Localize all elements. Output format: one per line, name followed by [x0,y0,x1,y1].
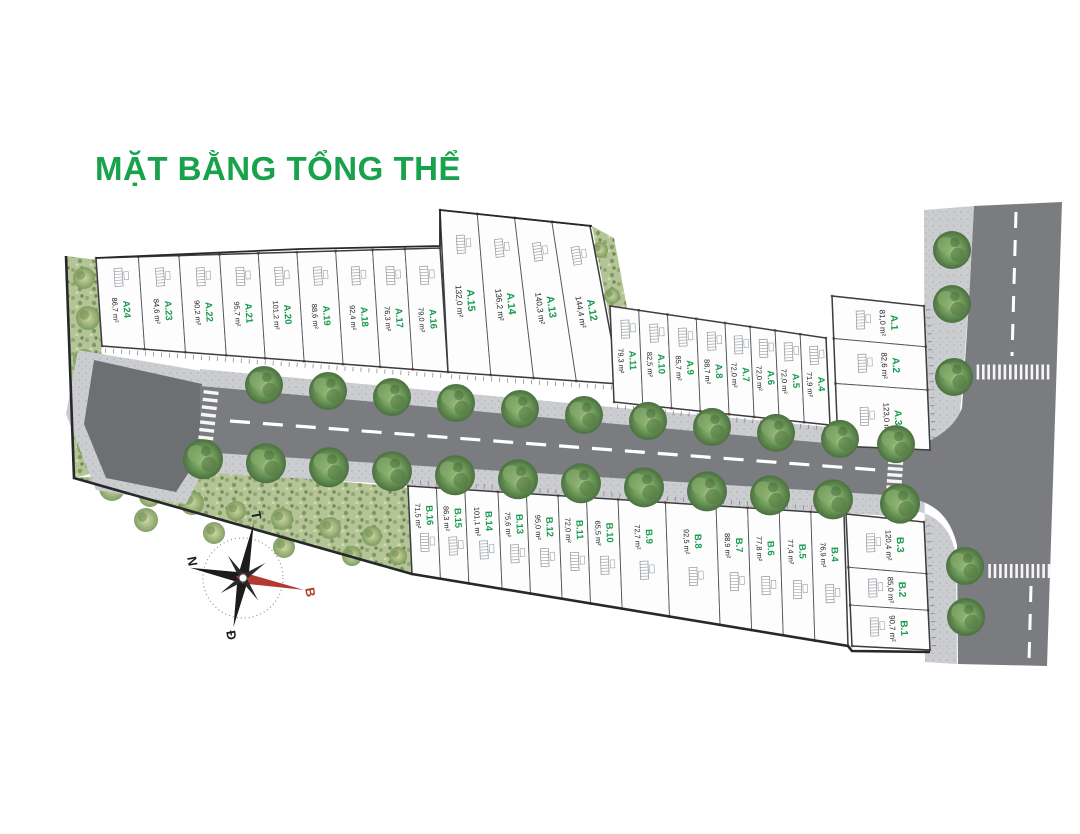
lot-id: A.11 [626,350,638,371]
lot-b-2: B.285,0 m² [847,566,929,611]
lot-b-4: B.476,9 m² [810,511,850,648]
lot-id: B.6 [764,541,775,556]
lot-area: 101,1 m² [472,507,482,537]
lot-id: A.20 [281,304,293,325]
lot-id: A.21 [242,303,254,324]
lot-area: 86,7 m² [110,297,121,323]
lot-area: 72,0 m² [563,518,573,544]
lot-label: A.1082,5 m² [645,351,667,378]
bush-icon [389,547,407,565]
tree-icon [757,414,795,452]
lot-area: 76,3 m² [382,306,393,332]
lot-label: B.1295,0 m² [533,514,555,540]
lot-b-9: B.972,7 m² [617,498,671,617]
lot-area: 79,3 m² [616,348,626,374]
lot-id: A.19 [320,305,332,326]
tree-icon [183,439,223,479]
lot-id: A.4 [815,376,827,392]
lot-area: 79,0 m² [416,307,427,333]
tree-icon [435,455,475,495]
lot-area: 88,7 m² [702,359,712,385]
tree-icon [624,467,664,507]
lot-id: B.15 [451,508,463,529]
tree-icon [813,479,853,519]
bush-icon [319,517,341,539]
road-east-centerline-bottom [1029,586,1031,662]
lot-b-14: B.14101,1 m² [464,488,504,590]
lot-id: A.3 [892,410,904,426]
lot-area: 75,6 m² [503,512,513,538]
lot-id: A.8 [713,364,725,379]
lot-b-15: B.1586,3 m² [435,487,470,585]
lot-area: 77,8 m² [754,536,764,562]
lot-a-22: A.2290,2 m² [178,253,228,356]
tree-icon [437,384,475,422]
lot-label: B.1586,3 m² [441,505,463,532]
tree-icon [561,463,601,503]
tree-icon [933,285,971,323]
lot-area: 71,5 m² [413,503,423,529]
lot-area: 120,4 m² [883,530,893,561]
tree-icon [501,390,539,428]
lot-a-9: A.985,7 m² [666,313,701,412]
lot-b-5: B.577,4 m² [778,509,816,642]
lot-id: B.1 [898,620,910,636]
bush-icon [604,288,620,304]
lot-area: 84,6 m² [152,299,163,325]
lot-label: B.1065,5 m² [593,520,615,546]
lot-b-12: B.1295,0 m² [525,492,563,600]
lot-id: A.7 [739,367,751,382]
bush-icon [134,508,158,532]
lot-area: 72,0 m² [779,369,789,395]
lot-id: B.7 [733,538,744,553]
lot-id: A.6 [764,370,776,385]
lot-id: A24 [120,300,132,319]
lot-b-6: B.677,8 m² [746,507,784,637]
lot-a-23: A.2384,6 m² [137,254,186,353]
lot-b-13: B.1375,6 m² [497,491,532,595]
bush-icon [362,526,382,546]
lot-area: 92,4 m² [348,305,359,331]
lot-id: A.14 [504,292,518,315]
lot-id: A.5 [790,373,802,389]
lot-id: B.10 [603,522,615,542]
lot-id: A.10 [655,354,667,375]
tree-icon [880,484,920,524]
tree-icon [629,402,667,440]
lot-id: B.13 [513,514,525,535]
lot-id: B.8 [692,534,704,549]
lot-area: 71,9 m² [805,372,815,398]
lot-id: B.11 [573,520,585,541]
lot-a-10: A.1082,5 m² [638,309,673,409]
compass-label-bottom: Đ [223,629,239,641]
lot-id: B.14 [482,511,494,532]
tree-icon [246,443,286,483]
bush-icon [226,501,246,521]
lot-b-7: B.788,9 m² [715,505,753,632]
lot-label: B.1671,5 m² [413,502,435,529]
lot-area: 76,9 m² [818,542,828,568]
lot-area: 81,0 m² [878,310,888,337]
tree-icon [373,378,411,416]
lot-id: B.4 [828,547,839,563]
lot-a24: A2486,7 m² [95,256,146,351]
lot-id: B.2 [896,582,908,598]
tree-icon [309,372,347,410]
lot-b-1: B.190,7 m² [849,604,931,651]
lot-id: B.3 [894,537,906,553]
bush-icon [203,522,225,544]
block-a-deep: A.15132,0 m²A.14136,2 m²A.13140,3 m²A.12… [439,209,621,390]
lot-area: 92,5 m² [682,529,692,555]
lot-id: A.2 [890,357,902,373]
lot-id: A.18 [358,306,370,327]
lot-label: B.1375,6 m² [503,511,525,537]
lot-area: 72,0 m² [754,365,764,391]
tree-icon [693,408,731,446]
bush-icon [76,306,100,330]
lot-area: 88,6 m² [310,304,321,330]
tree-icon [687,471,727,511]
lot-area: 95,0 m² [533,515,543,541]
lot-area: 90,2 m² [192,300,203,326]
block-a-outer: A2486,7 m²A.2384,6 m²A.2290,2 m²A.2195,7… [95,247,449,378]
lot-a-8: A.888,7 m² [695,318,730,416]
tree-icon [877,425,915,463]
lot-id: A.22 [202,302,214,323]
lot-area: 72,7 m² [633,524,643,550]
tree-icon [935,358,973,396]
lot-id: B.9 [643,529,655,544]
lot-area: 85,0 m² [886,577,896,604]
lot-b-10: B.1065,5 m² [585,496,623,610]
lot-b-3: B.3120,4 m² [845,513,928,575]
lot-id: A.1 [888,315,900,331]
tree-icon [565,396,603,434]
site-plan-page: MẶT BẰNG TỔNG THỂ A2486,7 m²A.2384,6 m²A… [0,0,1080,834]
tree-icon [309,447,349,487]
lot-area: 65,5 m² [593,520,603,546]
lot-id: B.16 [423,505,435,526]
lot-id: A.15 [464,289,477,312]
tree-icon [946,547,984,585]
lot-b-11: B.1172,0 m² [557,494,592,604]
lot-a-2: A.282,6 m² [833,337,929,391]
tree-icon [750,475,790,515]
lot-area: 88,9 m² [723,533,733,559]
lot-area: 77,4 m² [786,539,796,565]
lot-area: 90,7 m² [887,615,897,642]
lot-id: B.5 [796,544,807,560]
lot-id: A.17 [393,308,405,329]
tree-icon [372,451,412,491]
tree-icon [947,598,985,636]
site-plan-svg: A2486,7 m²A.2384,6 m²A.2290,2 m²A.2195,7… [0,0,1080,834]
lot-area: 95,7 m² [232,301,243,327]
lot-id: A.16 [426,309,438,330]
block-b-corner: B.3120,4 m²B.285,0 m²B.190,7 m² [845,513,936,651]
lot-b-8: B.892,5 m² [664,501,721,626]
lot-area: 85,7 m² [674,355,684,381]
lot-id: A.23 [162,300,174,321]
tree-icon [821,420,859,458]
compass-label-left: N [184,555,200,567]
lot-area: 72,0 m² [729,362,739,388]
lot-area: 82,5 m² [645,352,655,378]
bush-icon [73,267,95,289]
lot-id: B.12 [543,517,555,537]
compass-label-right: B [302,586,318,598]
tree-icon [245,366,283,404]
tree-icon [933,231,971,269]
bush-icon [271,508,293,530]
lot-id: A.9 [684,360,696,375]
lot-area: 82,6 m² [879,352,889,379]
tree-icon [498,459,538,499]
lot-area: 86,3 m² [441,506,451,532]
